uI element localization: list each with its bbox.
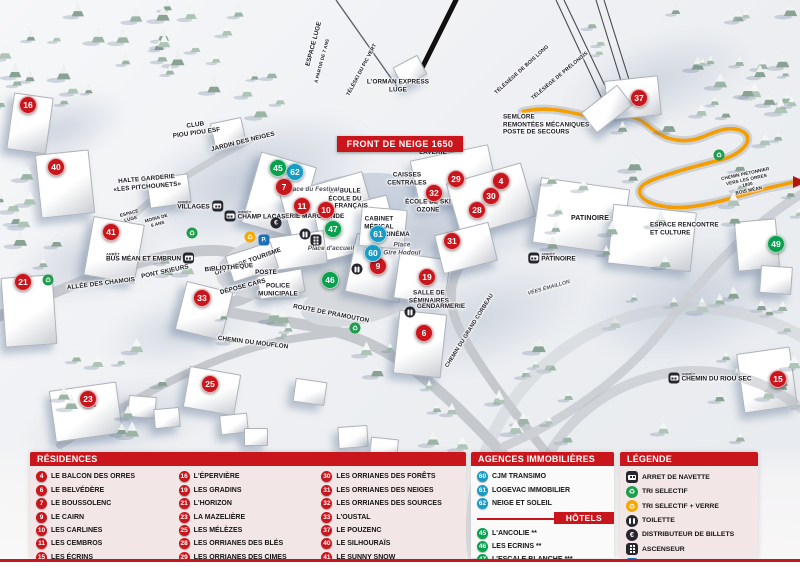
agencies-panel: AGENCES IMMOBILIÈRES 60CJM TRANSIMO61LOG…	[471, 452, 614, 558]
building	[607, 204, 697, 272]
map-marker-60: 60	[364, 244, 382, 262]
legend-item-label: LE BOUSSOLENC	[51, 500, 111, 507]
bus-glyph	[213, 204, 221, 209]
marker-badge: 31	[321, 485, 332, 496]
map-marker-31: 31	[443, 232, 461, 250]
legend-item-label: LES ECRINS **	[492, 543, 541, 550]
map-label: L'ORMAN EXPRESS LUGE	[367, 78, 429, 93]
agencies-list: 60CJM TRANSIMO61LOGEVAC IMMOBILIER62NEIG…	[471, 466, 614, 566]
recycle-green-icon: ♻	[626, 486, 638, 498]
legende-list: ARRET DE NAVETTE♻TRI SELECTIF♻TRI SELECT…	[620, 466, 758, 566]
map-label: ESPACE RENCONTRE ET CULTURE	[650, 221, 719, 236]
marker-badge: 4	[36, 471, 47, 482]
legend-item: ASCENSEUR	[626, 543, 752, 555]
legend-item-label: LOGEVAC IMMOBILIER	[492, 487, 570, 494]
marker-badge: 28	[179, 538, 190, 549]
marker-badge: 45	[477, 528, 488, 539]
map-marker-45: 45	[269, 159, 287, 177]
bus-icon	[668, 373, 679, 384]
legend-item-label: L'HORIZON	[194, 500, 232, 507]
legend-item: 37LE POUZENC	[321, 525, 460, 536]
legend-item-label: LE CAIRN	[51, 514, 84, 521]
recycle-yellow-icon: ♻	[245, 232, 256, 243]
wc-glyph	[354, 266, 360, 272]
recycle-green-icon: ♻	[187, 228, 198, 239]
recycle-green-icon: ♻	[43, 275, 54, 286]
residences-column: 30LES ORRIANES DES FORÊTS31LES ORRIANES …	[321, 469, 460, 565]
legend-item: 9LE CAIRN	[36, 512, 175, 523]
front-de-neige-banner: FRONT DE NEIGE 1650	[337, 136, 463, 152]
bus-stop-name: VILLAGES	[177, 205, 210, 212]
map-marker-21: 21	[14, 273, 32, 291]
lift-icon	[626, 543, 638, 555]
map-marker-32: 32	[425, 184, 443, 202]
legend-item: 21L'HORIZON	[179, 498, 318, 509]
map-marker-30: 30	[482, 187, 500, 205]
legend-item: 40LE SILHOURAÏS	[321, 538, 460, 549]
legend-item-label: LES CARLINES	[51, 527, 102, 534]
legend-item: 11LES CEMBROS	[36, 538, 175, 549]
bottom-white-edge	[0, 562, 800, 566]
map-label: SEMLORE REMONTÉES MÉCANIQUES POSTE DE SE…	[503, 114, 589, 137]
legend-item-label: TRI SELECTIF	[642, 488, 688, 495]
recycle-green-icon: ♻	[350, 323, 361, 334]
lift-icon	[311, 235, 322, 246]
marker-badge: 33	[321, 512, 332, 523]
dots-glyph	[630, 545, 635, 553]
hotels-title: HÔTELS	[554, 512, 614, 524]
bus-stop-name: CHEMIN DU RIOU SEC	[681, 377, 751, 384]
map-marker-33: 33	[193, 289, 211, 307]
legend-item: ♻TRI SELECTIF	[626, 486, 752, 498]
map-label: PONT SKIEURS	[141, 263, 190, 280]
map-label: PATINOIRE	[571, 215, 609, 223]
map-label: GENDARMERIE	[417, 303, 465, 311]
legend-item-label: LE SILHOURAÏS	[336, 540, 390, 547]
marker-badge: 11	[36, 538, 47, 549]
map-label: Place Gire Hodoul	[383, 241, 420, 256]
bus-stop-patinoire: ARRÊTPATINOIRE	[528, 253, 575, 264]
map-marker-19: 19	[418, 268, 436, 286]
map-label: ÉCOLE DE SKI OZONE	[405, 198, 451, 213]
map-marker-23: 23	[79, 390, 97, 408]
legend-title: LÉGENDE	[620, 452, 758, 466]
map-label: Place du Festival	[287, 186, 340, 194]
legend-item-label: DISTRIBUTEUR DE BILLETS	[642, 531, 734, 538]
marker-badge: 9	[36, 512, 47, 523]
legend-item-label: LES ORRIANES DES SOURCES	[336, 500, 441, 507]
legend-item-label: LE BELVÉDÈRE	[51, 487, 104, 494]
legend-item-label: LES MÉLÈZES	[194, 527, 243, 534]
map-marker-15: 15	[769, 370, 787, 388]
ski-lift-lines	[336, 0, 638, 116]
bus-stop-chemin-du-riou-sec: ARRÊTCHEMIN DU RIOU SEC	[668, 373, 751, 384]
marker-badge: 7	[36, 498, 47, 509]
map-label: ESPACE LUGE	[119, 208, 140, 224]
legend-item: 46LES ECRINS **	[477, 541, 608, 552]
map-marker-40: 40	[47, 158, 65, 176]
legend-item: 7LE BOUSSOLENC	[36, 498, 175, 509]
legend-item-label: L'OUSTAL	[336, 514, 370, 521]
legend-item: 45L'ANCOLIE **	[477, 528, 608, 539]
wc-glyph	[629, 518, 635, 524]
legend-item: 60CJM TRANSIMO	[477, 471, 608, 482]
legend-item: TOILETTE	[626, 515, 752, 527]
bus-stop-text: ARRÊTVILLAGES	[177, 201, 210, 212]
marker-badge: 19	[179, 485, 190, 496]
residences-column: 16L'ÉPERVIÈRE19LES GRADINS21L'HORIZON23L…	[179, 469, 318, 565]
map-marker-6: 6	[415, 324, 433, 342]
building	[434, 222, 498, 274]
map-marker-41: 41	[102, 223, 120, 241]
building	[292, 378, 327, 406]
legend-item: 23LA MAZELIÈRE	[179, 512, 318, 523]
legend-item: 6LE BELVÉDÈRE	[36, 485, 175, 496]
legend-item-label: TOILETTE	[642, 517, 675, 524]
parking-icon: P.	[259, 235, 270, 246]
marker-badge: 21	[179, 498, 190, 509]
legend-item: €DISTRIBUTEUR DE BILLETS	[626, 529, 752, 541]
building	[153, 407, 181, 429]
bus-glyph	[226, 214, 234, 219]
map-label: CHEMIN DU MOUFLON	[217, 335, 288, 351]
wc-glyph	[302, 231, 308, 237]
legend-item-label: LE BALCON DES ORRES	[51, 473, 135, 480]
legend-item: ARRET DE NAVETTE	[626, 471, 752, 483]
map-label: ALLÉE DES CHAMOIS	[67, 276, 136, 292]
bus-icon	[212, 201, 223, 212]
legend-item-label: LES ORRIANES DES NEIGES	[336, 487, 433, 494]
bus-glyph	[628, 475, 636, 480]
legend-item: 62NEIGE ET SOLEIL	[477, 498, 608, 509]
legend-panel: LÉGENDE ARRET DE NAVETTE♻TRI SELECTIF♻TR…	[620, 452, 758, 558]
bus-stop-name: PATINOIRE	[541, 257, 575, 264]
bus-stop-text: ARRÊTBUS MÉAN ET EMBRUN	[106, 253, 181, 264]
map-marker-16: 16	[19, 96, 37, 114]
marker-badge: 30	[321, 471, 332, 482]
marker-badge: 60	[477, 471, 488, 482]
dots-glyph	[314, 236, 319, 244]
legend-item-label: TRI SELECTIF + VERRE	[642, 503, 719, 510]
map-label: CHEMIN PIÉTONNIER VERS LES ORRES 1800 BO…	[719, 166, 775, 199]
bus-stop-text: ARRÊTCHEMIN DU RIOU SEC	[681, 373, 751, 384]
building	[127, 395, 157, 419]
map-marker-7: 7	[275, 178, 293, 196]
bus-stop-villages: ARRÊTVILLAGES	[177, 201, 223, 212]
legend-item: 4LE BALCON DES ORRES	[36, 471, 175, 482]
marker-badge: 61	[477, 485, 488, 496]
legend-item-label: ARRET DE NAVETTE	[642, 474, 710, 481]
bus-icon	[225, 211, 236, 222]
bus-glyph	[530, 256, 538, 261]
map-marker-10: 10	[317, 201, 335, 219]
map-marker-61: 61	[369, 225, 387, 243]
map-label: CINÉMA	[384, 231, 409, 239]
residences-list: 4LE BALCON DES ORRES6LE BELVÉDÈRE7LE BOU…	[30, 466, 466, 566]
legend-item-label: CJM TRANSIMO	[492, 473, 546, 480]
bus-stop-name: BUS MÉAN ET EMBRUN	[106, 257, 181, 264]
legend-item: 33L'OUSTAL	[321, 512, 460, 523]
legend-item: 28LES ORRIANES DES BLÉS	[179, 538, 318, 549]
legend-item-label: L'ÉPERVIÈRE	[194, 473, 240, 480]
euro-icon: €	[626, 529, 638, 541]
legend-item: 31LES ORRIANES DES NEIGES	[321, 485, 460, 496]
euro-icon: €	[271, 218, 282, 229]
legend-item: 30LES ORRIANES DES FORÊTS	[321, 471, 460, 482]
map-label: Place d'accueil	[308, 245, 354, 253]
marker-badge: 23	[179, 512, 190, 523]
recycle-yellow-icon: ♻	[626, 500, 638, 512]
residences-title: RÉSIDENCES	[30, 452, 466, 466]
legend-item: 61LOGEVAC IMMOBILIER	[477, 485, 608, 496]
legend-item-label: LA MAZELIÈRE	[194, 514, 245, 521]
legend-item: 10LES CARLINES	[36, 525, 175, 536]
residences-panel: RÉSIDENCES 4LE BALCON DES ORRES6LE BELVÉ…	[30, 452, 466, 558]
bus-glyph	[670, 376, 678, 381]
marker-badge: 6	[36, 485, 47, 496]
marker-badge: 32	[321, 498, 332, 509]
resort-map-poster: FRONT DE NEIGE 1650 RÉSIDENCES 4LE BALCO…	[0, 0, 800, 566]
legend-item: ♻TRI SELECTIF + VERRE	[626, 500, 752, 512]
marker-badge: 40	[321, 538, 332, 549]
building	[35, 149, 95, 218]
map-label: ROUTE DE PRAMOUTON	[292, 303, 369, 325]
map-label: VÉES ÉMAILLON	[527, 279, 571, 297]
map-label: MOINS DE 6 ANS	[144, 213, 170, 230]
map-marker-46: 46	[321, 271, 339, 289]
legend-item-label: LE POUZENC	[336, 527, 381, 534]
marker-badge: 37	[321, 525, 332, 536]
residences-column: 4LE BALCON DES ORRES6LE BELVÉDÈRE7LE BOU…	[36, 469, 175, 565]
legend-item: 19LES GRADINS	[179, 485, 318, 496]
legend-item-label: LES GRADINS	[194, 487, 242, 494]
bus-icon	[183, 253, 194, 264]
marker-badge: 46	[477, 541, 488, 552]
wc-glyph	[407, 309, 413, 315]
map-label: POSTE	[255, 269, 277, 277]
hotels-divider: HÔTELS	[477, 512, 608, 525]
legend-item-label: NEIGE ET SOLEIL	[492, 500, 552, 507]
building	[393, 310, 447, 379]
legend-item: 32LES ORRIANES DES SOURCES	[321, 498, 460, 509]
legend-item: 16L'ÉPERVIÈRE	[179, 471, 318, 482]
legend-item: 25LES MÉLÈZES	[179, 525, 318, 536]
bus-glyph	[185, 256, 193, 261]
bus-icon	[528, 253, 539, 264]
toilet-icon	[352, 264, 363, 275]
marker-badge: 62	[477, 498, 488, 509]
legend-item-label: LES ORRIANES DES FORÊTS	[336, 473, 435, 480]
legend-item-label: L'ANCOLIE **	[492, 530, 537, 537]
map-marker-28: 28	[468, 201, 486, 219]
legend-item-label: LES ORRIANES DES BLÉS	[194, 540, 283, 547]
map-label: CAISSES CENTRALES	[387, 171, 426, 186]
map-marker-47: 47	[324, 220, 342, 238]
map-marker-29: 29	[447, 170, 465, 188]
toilet-icon	[300, 229, 311, 240]
recycle-green-icon: ♻	[714, 150, 725, 161]
toilet-icon	[405, 307, 416, 318]
marker-badge: 10	[36, 525, 47, 536]
bus-icon	[626, 471, 638, 483]
map-marker-62: 62	[286, 163, 304, 181]
bus-stop-bus-m-an-et-embrun: ARRÊTBUS MÉAN ET EMBRUN	[106, 253, 194, 264]
map-marker-25: 25	[201, 375, 219, 393]
legend-item-label: LES CEMBROS	[51, 540, 102, 547]
map-marker-49: 49	[767, 235, 785, 253]
map-marker-37: 37	[630, 89, 648, 107]
building	[759, 265, 793, 295]
bus-stop-text: ARRÊTPATINOIRE	[541, 253, 575, 264]
toilet-icon	[626, 515, 638, 527]
legend-item-label: ASCENSEUR	[642, 546, 685, 553]
agencies-title: AGENCES IMMOBILIÈRES	[471, 452, 614, 466]
marker-badge: 25	[179, 525, 190, 536]
map-marker-11: 11	[293, 197, 311, 215]
marker-badge: 16	[179, 471, 190, 482]
